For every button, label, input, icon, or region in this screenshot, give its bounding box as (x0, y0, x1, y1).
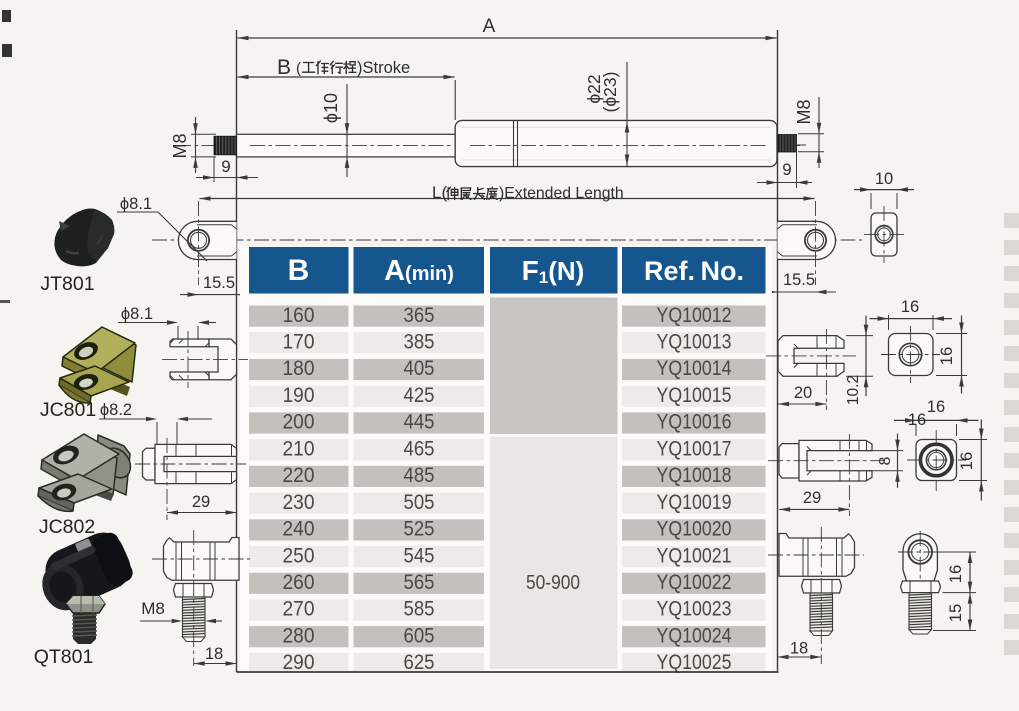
svg-text:425: 425 (404, 384, 435, 407)
svg-text:565: 565 (404, 571, 435, 594)
svg-text:)Stroke: )Stroke (357, 59, 410, 77)
svg-text:YQ10017: YQ10017 (657, 437, 732, 460)
svg-text:15.5: 15.5 (783, 271, 815, 289)
svg-text:625: 625 (404, 651, 435, 674)
svg-text:220: 220 (283, 464, 315, 487)
svg-text:YQ10019: YQ10019 (657, 491, 732, 514)
svg-text:ϕ8.2: ϕ8.2 (100, 401, 132, 419)
svg-text:525: 525 (404, 518, 435, 541)
svg-text:10.2: 10.2 (845, 375, 862, 405)
svg-text:16: 16 (947, 565, 965, 583)
svg-text:170: 170 (283, 331, 315, 354)
svg-text:18: 18 (205, 645, 223, 663)
svg-text:270: 270 (283, 598, 315, 621)
svg-text:160: 160 (283, 304, 315, 327)
svg-text:16: 16 (908, 411, 926, 429)
svg-text:200: 200 (283, 411, 315, 434)
svg-text:B: B (288, 254, 310, 287)
svg-text:485: 485 (404, 464, 435, 487)
svg-text:ϕ8.1: ϕ8.1 (120, 195, 152, 213)
svg-text:29: 29 (192, 493, 210, 511)
svg-text:8: 8 (877, 457, 894, 466)
svg-text:280: 280 (283, 624, 315, 647)
svg-text:10: 10 (875, 170, 893, 188)
svg-text:YQ10024: YQ10024 (657, 624, 732, 647)
svg-text:QT801: QT801 (34, 646, 94, 668)
svg-text:15: 15 (947, 604, 965, 622)
svg-text:465: 465 (404, 437, 435, 460)
svg-text:M8: M8 (170, 133, 190, 158)
svg-text:YQ10022: YQ10022 (657, 571, 732, 594)
svg-text:YQ10025: YQ10025 (657, 651, 732, 674)
svg-text:L(: L( (432, 183, 447, 202)
svg-text:M8: M8 (141, 599, 165, 618)
svg-text:16: 16 (938, 347, 956, 365)
svg-text:50-900: 50-900 (526, 572, 580, 594)
svg-text:365: 365 (404, 304, 435, 327)
svg-text:230: 230 (283, 491, 315, 514)
svg-text:585: 585 (404, 598, 435, 621)
svg-text:JC802: JC802 (39, 516, 95, 538)
svg-text:ϕ8.1: ϕ8.1 (121, 305, 153, 323)
svg-text:250: 250 (283, 544, 315, 567)
svg-text:16: 16 (958, 452, 976, 470)
svg-text:YQ10018: YQ10018 (657, 464, 732, 487)
svg-text:18: 18 (790, 640, 808, 658)
svg-text:9: 9 (221, 157, 230, 176)
svg-text:405: 405 (404, 357, 435, 380)
svg-text:YQ10020: YQ10020 (657, 518, 732, 541)
svg-text:15.5: 15.5 (203, 274, 235, 292)
svg-text:29: 29 (803, 489, 821, 507)
svg-text:(ϕ23): (ϕ23) (600, 72, 620, 113)
svg-text:9: 9 (782, 160, 791, 179)
svg-text:Ref. No.: Ref. No. (644, 256, 744, 286)
svg-text:JT801: JT801 (40, 273, 94, 295)
svg-text:20: 20 (794, 384, 812, 402)
svg-text:YQ10021: YQ10021 (657, 544, 732, 567)
svg-text:180: 180 (283, 357, 315, 380)
svg-text:210: 210 (283, 437, 315, 460)
svg-text:(: ( (296, 60, 301, 77)
svg-text:JC801: JC801 (40, 399, 96, 421)
svg-text:385: 385 (404, 331, 435, 354)
svg-text:YQ10016: YQ10016 (657, 411, 732, 434)
svg-text:240: 240 (283, 518, 315, 541)
svg-text:B: B (277, 56, 291, 79)
svg-text:YQ10014: YQ10014 (657, 357, 732, 380)
svg-text:F1(N): F1(N) (522, 255, 585, 287)
svg-text:A: A (483, 16, 496, 37)
svg-text:YQ10012: YQ10012 (657, 304, 732, 327)
svg-text:YQ10013: YQ10013 (657, 331, 732, 354)
svg-text:260: 260 (283, 571, 315, 594)
svg-text:445: 445 (404, 411, 435, 434)
svg-text:545: 545 (404, 544, 435, 567)
svg-text:ϕ10: ϕ10 (321, 93, 341, 123)
svg-text:505: 505 (404, 491, 435, 514)
svg-text:M8: M8 (794, 99, 814, 124)
svg-text:YQ10023: YQ10023 (657, 598, 732, 621)
svg-text:605: 605 (404, 624, 435, 647)
svg-text:16: 16 (901, 298, 919, 316)
svg-text:)Extended Length: )Extended Length (499, 185, 624, 202)
svg-text:YQ10015: YQ10015 (657, 384, 732, 407)
svg-text:190: 190 (283, 384, 315, 407)
svg-text:16: 16 (927, 398, 945, 416)
svg-text:290: 290 (283, 651, 315, 674)
